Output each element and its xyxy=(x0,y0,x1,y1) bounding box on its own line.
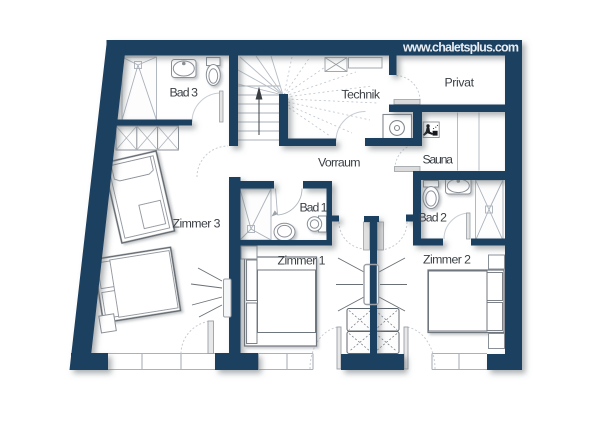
svg-text:Privat: Privat xyxy=(445,76,475,90)
svg-text:Zimmer 2: Zimmer 2 xyxy=(423,253,471,267)
svg-text:Sauna: Sauna xyxy=(423,153,454,167)
svg-text:Bad 2: Bad 2 xyxy=(419,211,448,225)
svg-text:Bad 1: Bad 1 xyxy=(300,201,328,215)
svg-text:www.chaletsplus.com: www.chaletsplus.com xyxy=(402,41,519,55)
svg-text:Zimmer 3: Zimmer 3 xyxy=(173,217,221,231)
svg-text:Technik: Technik xyxy=(342,88,381,102)
svg-text:Zimmer 1: Zimmer 1 xyxy=(278,254,326,268)
svg-text:Vorraum: Vorraum xyxy=(318,156,361,170)
svg-text:Bad 3: Bad 3 xyxy=(170,86,199,100)
